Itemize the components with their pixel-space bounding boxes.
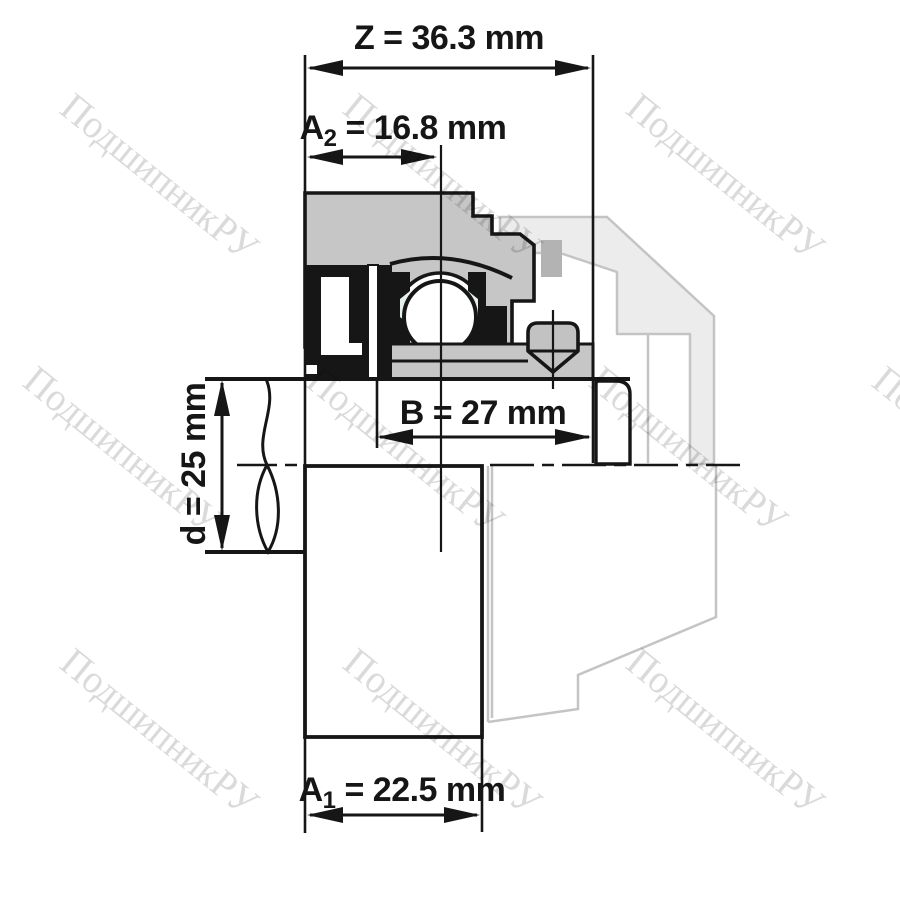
- arrowhead-right: [444, 807, 480, 823]
- ghost-housing-dark-boss: [541, 240, 562, 277]
- watermark-text: ПодшипникРУ: [52, 84, 267, 270]
- watermark-layer: ПодшипникРУ ПодшипникРУ ПодшипникРУ Подш…: [15, 84, 900, 825]
- watermark-text: ПодшипникРУ: [864, 357, 900, 543]
- page: Z = 36.3 mm A2 = 16.8 mm B = 27 mm d = 2…: [0, 0, 900, 900]
- shaft-break-lens: [257, 465, 279, 552]
- watermark-text: ПодшипникРУ: [618, 84, 833, 270]
- arrowhead-left: [307, 60, 343, 76]
- slinger-strip: [368, 265, 378, 379]
- arrowhead-up: [214, 380, 230, 416]
- arrowhead-right: [555, 60, 591, 76]
- dimension-z-label: Z = 36.3 mm: [354, 19, 544, 57]
- shaft-break-s-curve: [263, 379, 270, 465]
- inner-ring-right-step: [486, 306, 507, 346]
- dimension-z: Z = 36.3 mm: [307, 19, 591, 76]
- seal-assembly: [305, 265, 392, 379]
- bearing-technical-drawing: Z = 36.3 mm A2 = 16.8 mm B = 27 mm d = 2…: [0, 0, 900, 900]
- dimension-b-label: B = 27 mm: [400, 394, 567, 432]
- flinger-strip: [378, 265, 392, 379]
- watermark-text: ПодшипникРУ: [618, 639, 833, 825]
- watermark-text: ПодшипникРУ: [52, 639, 267, 825]
